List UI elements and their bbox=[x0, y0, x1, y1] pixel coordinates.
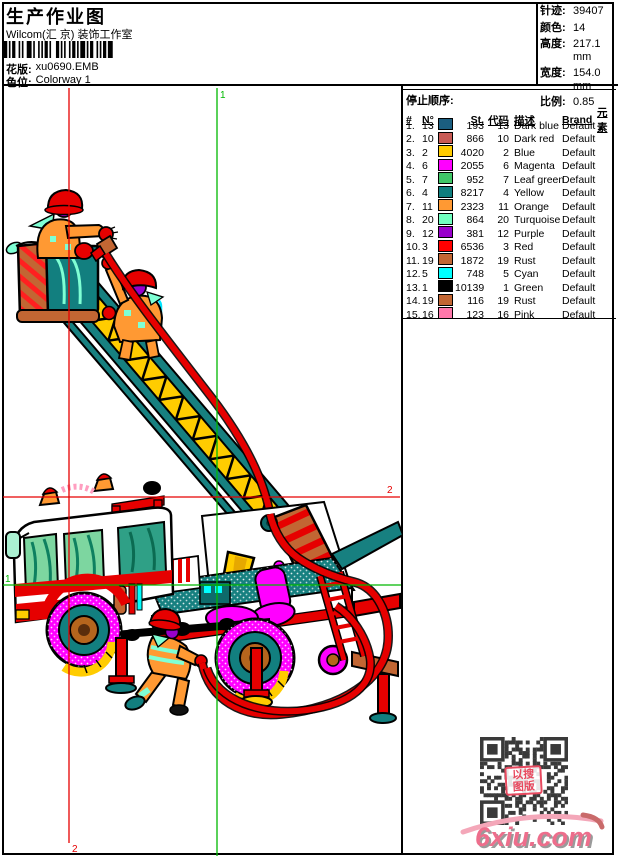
stitches-value: 39407 bbox=[573, 5, 604, 18]
stitches-label: 针迹: bbox=[540, 5, 573, 18]
stop-sequence-row: 3.240202BlueDefault bbox=[406, 145, 614, 159]
cell-stitches: 2055 bbox=[455, 160, 484, 172]
cell-seq: 8. bbox=[406, 214, 422, 226]
cell-code: 20 bbox=[484, 214, 509, 226]
cell-seq: 2. bbox=[406, 133, 422, 145]
thread-color-swatch bbox=[438, 145, 453, 157]
stop-sequence-row: 14.1911619RustDefault bbox=[406, 294, 614, 308]
cell-code: 12 bbox=[484, 228, 509, 240]
cell-description: Pink bbox=[509, 309, 559, 321]
stop-sequence-panel: 停止顺序: # N° St. 代码 描述 Brand 元素 1.1319313D… bbox=[403, 89, 617, 318]
cell-needle: 4 bbox=[422, 187, 436, 199]
thread-color-swatch bbox=[438, 172, 453, 184]
cell-code: 3 bbox=[484, 241, 509, 253]
cell-code: 10 bbox=[484, 133, 509, 145]
cell-stitches: 123 bbox=[455, 309, 484, 321]
stop-sequence-rows: 1.1319313Dark blueDefault2.1086610Dark r… bbox=[406, 118, 614, 321]
cell-description: Orange bbox=[509, 201, 559, 213]
cell-code: 13 bbox=[484, 120, 509, 132]
cell-stitches: 952 bbox=[455, 174, 484, 186]
cell-description: Rust bbox=[509, 255, 559, 267]
thread-color-swatch bbox=[438, 267, 453, 279]
thread-color-swatch bbox=[438, 118, 453, 130]
cell-code: 7 bbox=[484, 174, 509, 186]
cell-needle: 13 bbox=[422, 120, 436, 132]
thread-color-swatch bbox=[438, 159, 453, 171]
marker-label-start-left: 1 bbox=[5, 574, 11, 585]
cell-needle: 5 bbox=[422, 268, 436, 280]
thread-color-swatch bbox=[438, 253, 453, 265]
fire-truck bbox=[6, 474, 402, 723]
marker-label-start-top: 1 bbox=[220, 90, 226, 101]
cell-code: 5 bbox=[484, 268, 509, 280]
cell-stitches: 381 bbox=[455, 228, 484, 240]
cell-needle: 1 bbox=[422, 282, 436, 294]
cell-stitches: 748 bbox=[455, 268, 484, 280]
thread-color-swatch bbox=[438, 280, 453, 292]
cell-needle: 12 bbox=[422, 228, 436, 240]
company-name: Wilcom(汇 京) 装饰工作室 bbox=[6, 26, 133, 42]
thread-color-swatch bbox=[438, 213, 453, 225]
stop-sequence-row: 10.365363RedDefault bbox=[406, 240, 614, 254]
cell-code: 2 bbox=[484, 147, 509, 159]
logo-text: 6xiu.com bbox=[475, 822, 592, 852]
qr-stamp: 以搜 图版 bbox=[504, 765, 542, 796]
cell-description: Dark blue bbox=[509, 120, 559, 132]
cell-description: Dark red bbox=[509, 133, 559, 145]
cell-brand: Default bbox=[559, 120, 597, 132]
cell-brand: Default bbox=[559, 228, 597, 240]
cell-needle: 6 bbox=[422, 160, 436, 172]
cell-seq: 6. bbox=[406, 187, 422, 199]
cell-stitches: 866 bbox=[455, 133, 484, 145]
cell-stitches: 6536 bbox=[455, 241, 484, 253]
marker-label-end-bottom: 2 bbox=[72, 844, 78, 855]
cell-seq: 12. bbox=[406, 268, 422, 280]
cell-needle: 16 bbox=[422, 309, 436, 321]
cell-code: 16 bbox=[484, 309, 509, 321]
cell-needle: 19 bbox=[422, 255, 436, 267]
qr-stamp-line2: 图版 bbox=[507, 780, 541, 794]
front-wheel bbox=[47, 593, 121, 673]
stop-sequence-row: 4.620556MagentaDefault bbox=[406, 159, 614, 173]
site-logo: 6xiu.com 6xiu.com bbox=[455, 806, 615, 856]
cell-description: Turquoise bbox=[509, 214, 559, 226]
cell-description: Yellow bbox=[509, 187, 559, 199]
design-barcode bbox=[4, 41, 118, 58]
stop-sequence-row: 5.79527Leaf greenDefault bbox=[406, 172, 614, 186]
cell-code: 1 bbox=[484, 282, 509, 294]
cell-seq: 14. bbox=[406, 295, 422, 307]
cell-stitches: 8217 bbox=[455, 187, 484, 199]
stop-sequence-row: 9.1238112PurpleDefault bbox=[406, 226, 614, 240]
cell-description: Blue bbox=[509, 147, 559, 159]
cell-brand: Default bbox=[559, 282, 597, 294]
cell-brand: Default bbox=[559, 187, 597, 199]
thread-color-swatch bbox=[438, 240, 453, 252]
cell-stitches: 4020 bbox=[455, 147, 484, 159]
cell-description: Green bbox=[509, 282, 559, 294]
thread-color-swatch bbox=[438, 294, 453, 306]
design-canvas: 1 1 2 2 bbox=[2, 86, 402, 858]
thread-color-swatch bbox=[438, 186, 453, 198]
cell-needle: 7 bbox=[422, 174, 436, 186]
cell-code: 11 bbox=[484, 201, 509, 213]
stop-sequence-row: 1.1319313Dark blueDefault bbox=[406, 118, 614, 132]
height-value: 217.1 mm bbox=[573, 38, 616, 63]
cell-brand: Default bbox=[559, 147, 597, 159]
stop-sequence-row: 6.482174YellowDefault bbox=[406, 186, 614, 200]
cell-brand: Default bbox=[559, 241, 597, 253]
qr-stamp-line1: 以搜 bbox=[506, 768, 540, 782]
stop-sequence-row: 11.19187219RustDefault bbox=[406, 253, 614, 267]
cell-seq: 15. bbox=[406, 309, 422, 321]
cell-needle: 3 bbox=[422, 241, 436, 253]
cell-code: 4 bbox=[484, 187, 509, 199]
cell-description: Leaf green bbox=[509, 174, 559, 186]
thread-color-swatch bbox=[438, 307, 453, 319]
cell-description: Rust bbox=[509, 295, 559, 307]
stop-sequence-row: 2.1086610Dark redDefault bbox=[406, 132, 614, 146]
cell-stitches: 10139 bbox=[455, 282, 484, 294]
cell-description: Cyan bbox=[509, 268, 559, 280]
cell-seq: 13. bbox=[406, 282, 422, 294]
cell-needle: 19 bbox=[422, 295, 436, 307]
cell-needle: 2 bbox=[422, 147, 436, 159]
cell-seq: 10. bbox=[406, 241, 422, 253]
stop-sequence-row: 15.1612316PinkDefault bbox=[406, 307, 614, 321]
cell-brand: Default bbox=[559, 174, 597, 186]
cell-stitches: 116 bbox=[455, 295, 484, 307]
cell-seq: 4. bbox=[406, 160, 422, 172]
cell-brand: Default bbox=[559, 309, 597, 321]
cell-seq: 3. bbox=[406, 147, 422, 159]
stop-sequence-row: 7.11232311OrangeDefault bbox=[406, 199, 614, 213]
cell-brand: Default bbox=[559, 295, 597, 307]
cell-brand: Default bbox=[559, 268, 597, 280]
cell-code: 19 bbox=[484, 295, 509, 307]
cell-brand: Default bbox=[559, 201, 597, 213]
colors-label: 颜色: bbox=[540, 22, 573, 35]
cell-seq: 9. bbox=[406, 228, 422, 240]
cell-stitches: 193 bbox=[455, 120, 484, 132]
thread-color-swatch bbox=[438, 132, 453, 144]
cell-needle: 20 bbox=[422, 214, 436, 226]
cell-stitches: 2323 bbox=[455, 201, 484, 213]
cell-needle: 11 bbox=[422, 201, 436, 213]
cell-code: 19 bbox=[484, 255, 509, 267]
cell-brand: Default bbox=[559, 214, 597, 226]
height-label: 高度: bbox=[540, 38, 573, 63]
water-spray bbox=[62, 487, 96, 493]
production-worksheet: 生产作业图 Wilcom(汇 京) 装饰工作室 花版: xu0690.EMB 色… bbox=[0, 0, 620, 860]
cell-description: Red bbox=[509, 241, 559, 253]
cell-brand: Default bbox=[559, 160, 597, 172]
thread-color-swatch bbox=[438, 199, 453, 211]
cell-description: Magenta bbox=[509, 160, 559, 172]
stop-sequence-row: 12.57485CyanDefault bbox=[406, 267, 614, 281]
cell-description: Purple bbox=[509, 228, 559, 240]
cell-seq: 5. bbox=[406, 174, 422, 186]
stop-sequence-row: 8.2086420TurquoiseDefault bbox=[406, 213, 614, 227]
cell-needle: 10 bbox=[422, 133, 436, 145]
stop-sequence-row: 13.1101391GreenDefault bbox=[406, 280, 614, 294]
barcode-graphic bbox=[4, 41, 118, 58]
cell-brand: Default bbox=[559, 255, 597, 267]
cell-code: 6 bbox=[484, 160, 509, 172]
header-vertical-divider bbox=[536, 2, 538, 86]
cell-seq: 7. bbox=[406, 201, 422, 213]
cell-brand: Default bbox=[559, 133, 597, 145]
colors-value: 14 bbox=[573, 22, 585, 35]
marker-label-end-right: 2 bbox=[387, 485, 393, 496]
cell-stitches: 1872 bbox=[455, 255, 484, 267]
cell-stitches: 864 bbox=[455, 214, 484, 226]
thread-color-swatch bbox=[438, 226, 453, 238]
cell-seq: 11. bbox=[406, 255, 422, 267]
cell-seq: 1. bbox=[406, 120, 422, 132]
